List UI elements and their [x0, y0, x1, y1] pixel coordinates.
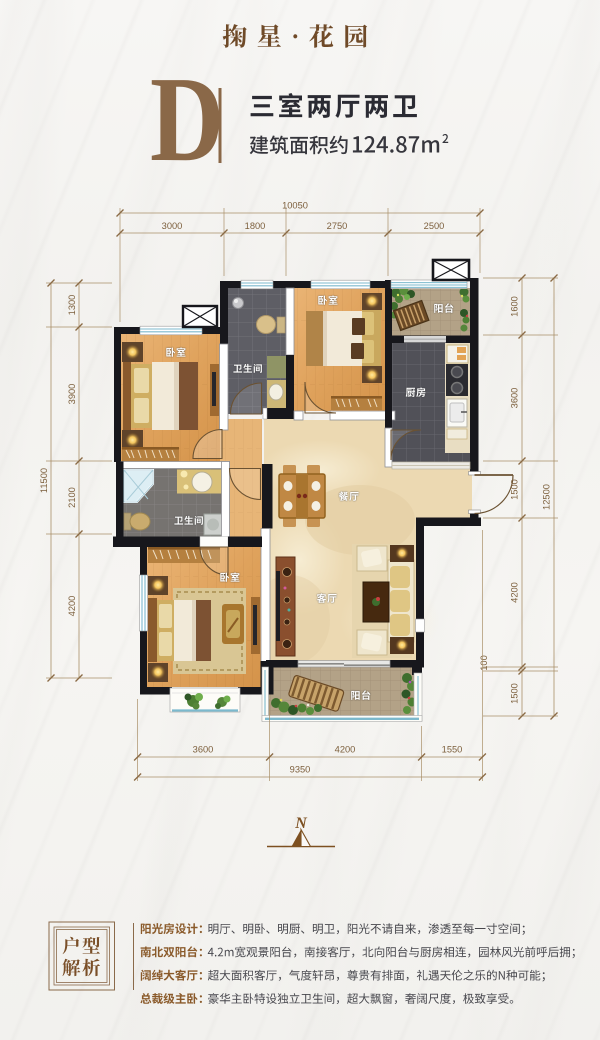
svg-text:1500: 1500 — [510, 479, 520, 500]
svg-text:4200: 4200 — [335, 745, 356, 755]
svg-text:11500: 11500 — [39, 468, 49, 493]
svg-text:4200: 4200 — [67, 596, 77, 617]
svg-text:3600: 3600 — [193, 745, 214, 755]
svg-text:3900: 3900 — [67, 384, 77, 405]
svg-text:12500: 12500 — [542, 484, 552, 510]
svg-text:1300: 1300 — [67, 295, 77, 316]
svg-text:3000: 3000 — [162, 221, 183, 231]
svg-text:1550: 1550 — [442, 745, 463, 755]
svg-text:1500: 1500 — [510, 683, 520, 704]
svg-text:2500: 2500 — [424, 221, 445, 231]
svg-text:2750: 2750 — [327, 221, 348, 231]
svg-text:4200: 4200 — [510, 582, 520, 603]
svg-text:9350: 9350 — [290, 765, 311, 775]
svg-text:1800: 1800 — [245, 221, 266, 231]
svg-text:N: N — [294, 815, 308, 832]
svg-text:100: 100 — [479, 655, 489, 671]
svg-text:1600: 1600 — [510, 296, 520, 317]
svg-text:10050: 10050 — [282, 201, 308, 211]
svg-text:2100: 2100 — [67, 487, 77, 508]
svg-text:3600: 3600 — [510, 388, 520, 409]
